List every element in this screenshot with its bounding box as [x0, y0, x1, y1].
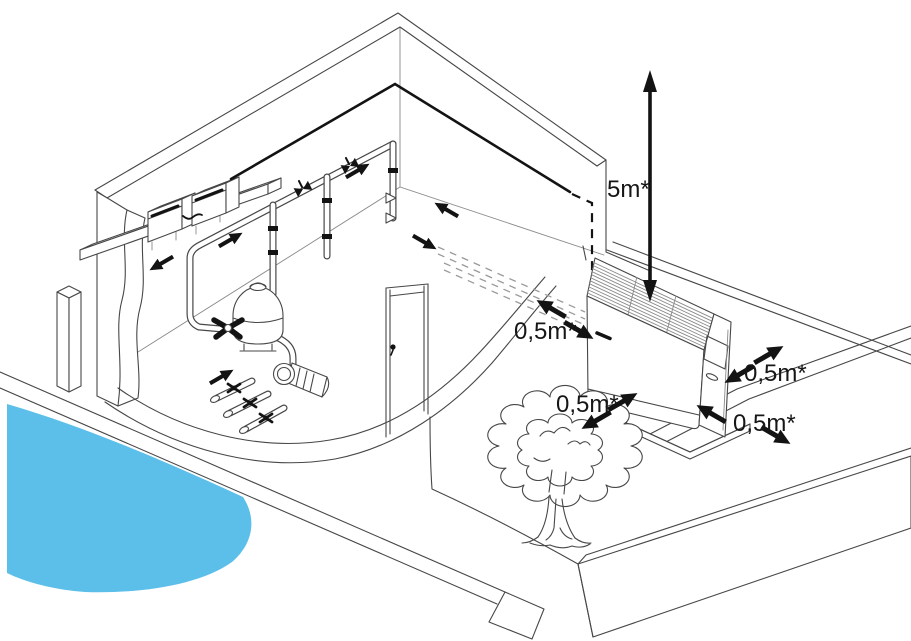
floor-pipe-valves — [209, 381, 284, 435]
pool-water — [7, 404, 251, 592]
clearance-label-front: 0,5m* — [733, 410, 796, 437]
installation-diagram: 5m* 0,5m* 0,5m* 0,5m* 0,5m* — [0, 0, 911, 641]
control-box — [192, 177, 239, 226]
door-handle-icon — [390, 344, 395, 349]
technical-room — [57, 13, 648, 406]
left-wall-cutaway — [97, 192, 127, 406]
clearance-label-wall: 0,5m* — [514, 318, 577, 345]
wall-ridge-cap-right — [597, 160, 606, 166]
flow-arrow-icon — [147, 251, 177, 275]
doorway — [386, 284, 428, 437]
hidden-pipe-line — [438, 247, 585, 312]
flow-arrow-icon — [207, 365, 237, 389]
flow-arrow-icon — [432, 198, 462, 222]
hidden-pipe-line — [438, 254, 585, 319]
deck-end-cap — [489, 592, 544, 639]
clearance-label-side: 0,5m* — [744, 360, 807, 387]
valve-handle-icon — [228, 384, 272, 422]
filter-base — [240, 344, 276, 351]
wall-stub — [57, 286, 81, 392]
clearance-label-tree: 0,5m* — [556, 391, 619, 418]
floor-edge-curve — [118, 277, 545, 443]
clearance-label-above: 5m* — [607, 176, 650, 203]
pipe-couplings — [268, 168, 398, 255]
shelf-end — [268, 178, 281, 194]
flow-arrow-icon — [410, 230, 440, 254]
control-box — [148, 193, 195, 242]
circulation-pump — [274, 363, 329, 397]
electrical-cable — [231, 84, 570, 192]
